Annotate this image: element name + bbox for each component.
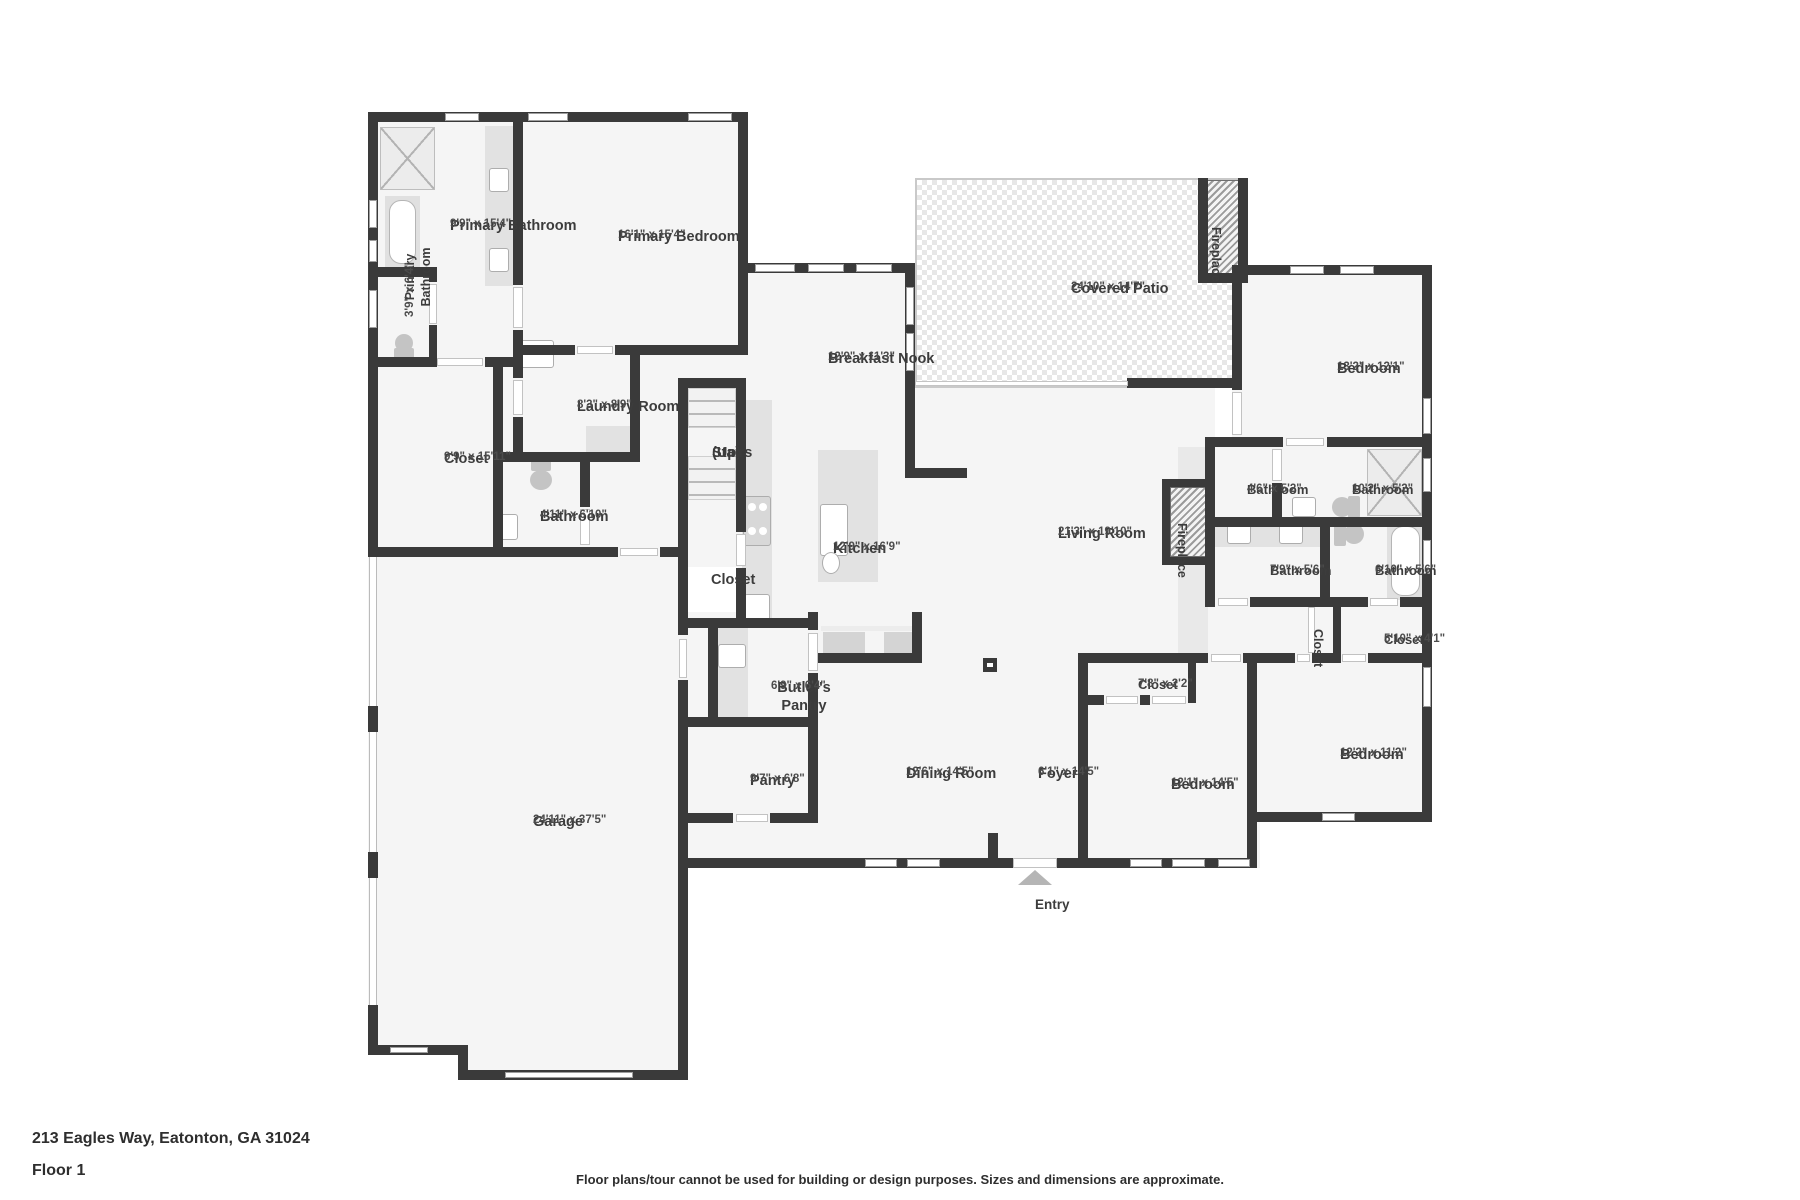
column-marker (983, 658, 997, 672)
toilet-icon (528, 458, 554, 492)
room-floor-garage (368, 547, 688, 1055)
window-marker (865, 859, 897, 867)
wall (1140, 695, 1150, 705)
stairs-treads (688, 388, 736, 428)
wall (368, 112, 378, 557)
wall (912, 612, 922, 663)
stairs-treads (688, 456, 736, 500)
door-marker (679, 639, 687, 678)
wall (736, 378, 746, 508)
wall (915, 468, 967, 478)
door-marker (577, 346, 613, 354)
door-marker (1297, 654, 1310, 662)
door-marker (1370, 598, 1398, 606)
window-marker (528, 113, 568, 121)
wall (1127, 378, 1240, 388)
disclaimer-text: Floor plans/tour cannot be used for buil… (576, 1172, 1224, 1187)
window-marker (1322, 813, 1355, 821)
wall (808, 612, 818, 630)
wall (808, 717, 818, 823)
wall (513, 417, 523, 462)
shower-icon (380, 127, 435, 190)
sink-icon (718, 644, 746, 668)
entry-door (1013, 858, 1057, 868)
wall (678, 378, 688, 628)
wall (770, 813, 818, 823)
wall (988, 833, 998, 868)
wall (513, 112, 523, 285)
sink-icon (489, 248, 509, 272)
door-marker (1286, 438, 1324, 446)
wall (678, 813, 733, 823)
window-marker (906, 287, 914, 325)
window-marker (369, 240, 377, 262)
door-marker (736, 814, 768, 822)
wall (678, 680, 688, 1080)
window-marker (369, 290, 377, 328)
window-marker (907, 859, 940, 867)
door-marker (1106, 696, 1138, 704)
door-marker (437, 358, 483, 366)
floor-label: Floor 1 (32, 1162, 85, 1180)
sink-icon (489, 168, 509, 192)
wall (1368, 653, 1432, 663)
window-marker (390, 1047, 428, 1053)
wall (1400, 597, 1432, 607)
wall (373, 357, 437, 367)
wall (678, 717, 818, 727)
wall (1232, 265, 1432, 275)
wall (368, 547, 618, 557)
garage-door (369, 557, 377, 1005)
window-marker (1423, 398, 1431, 434)
door-marker (513, 380, 523, 415)
wall (678, 858, 1013, 868)
wall (736, 508, 746, 532)
door-marker (736, 534, 746, 566)
door-marker (620, 548, 658, 556)
wall (1247, 653, 1257, 868)
floor-plan: Primary Bathroom9'9" x 15'4" Primary Bed… (0, 0, 1800, 1200)
wall (1205, 517, 1432, 527)
window-marker (1423, 667, 1431, 707)
wall (1078, 653, 1088, 868)
cooktop-icon (743, 496, 771, 546)
door-marker (1152, 696, 1186, 704)
window-marker (1423, 458, 1431, 492)
sink-icon (1292, 497, 1316, 517)
window-marker (1218, 859, 1250, 867)
wall (368, 852, 378, 878)
entry-arrow-icon (1018, 870, 1052, 885)
wall (513, 355, 523, 378)
window-marker (505, 1072, 633, 1078)
door-marker (808, 633, 818, 671)
window-marker (688, 113, 732, 121)
window-marker (856, 264, 892, 272)
window-marker (1290, 266, 1324, 274)
window-marker (1340, 266, 1374, 274)
window-marker (369, 200, 377, 228)
butlers-pantry-counter (716, 628, 748, 722)
wall (810, 653, 922, 663)
wall (708, 618, 718, 727)
wall (368, 706, 378, 732)
wall (1057, 858, 1088, 868)
door-marker (1272, 449, 1282, 481)
wall (580, 452, 590, 507)
door-marker (1342, 654, 1366, 662)
bench-icon (823, 632, 865, 655)
wall (1327, 437, 1432, 447)
wall (1205, 597, 1215, 607)
dryer-icon (586, 426, 630, 454)
door-marker (1218, 598, 1248, 606)
door-marker (1232, 392, 1242, 435)
door-marker (1211, 654, 1241, 662)
wall (1205, 437, 1283, 447)
window-marker (1172, 859, 1205, 867)
wall (1320, 517, 1330, 607)
wall (1162, 479, 1170, 565)
wall (513, 330, 523, 355)
window-marker (755, 264, 795, 272)
bathtub-icon (1387, 522, 1424, 600)
wall (1308, 597, 1315, 607)
chimney-block (1178, 447, 1208, 483)
door-marker (513, 287, 523, 328)
wall (678, 618, 818, 628)
room-floor-bedroom-tr (1232, 265, 1432, 447)
address-text: 213 Eagles Way, Eatonton, GA 31024 (32, 1130, 310, 1148)
buffet-counter (821, 626, 914, 631)
bench-icon (884, 632, 913, 655)
window-marker (808, 264, 844, 272)
window-marker (1130, 859, 1162, 867)
wall (1232, 265, 1242, 390)
window-marker (915, 381, 1128, 386)
window-marker (445, 113, 479, 121)
